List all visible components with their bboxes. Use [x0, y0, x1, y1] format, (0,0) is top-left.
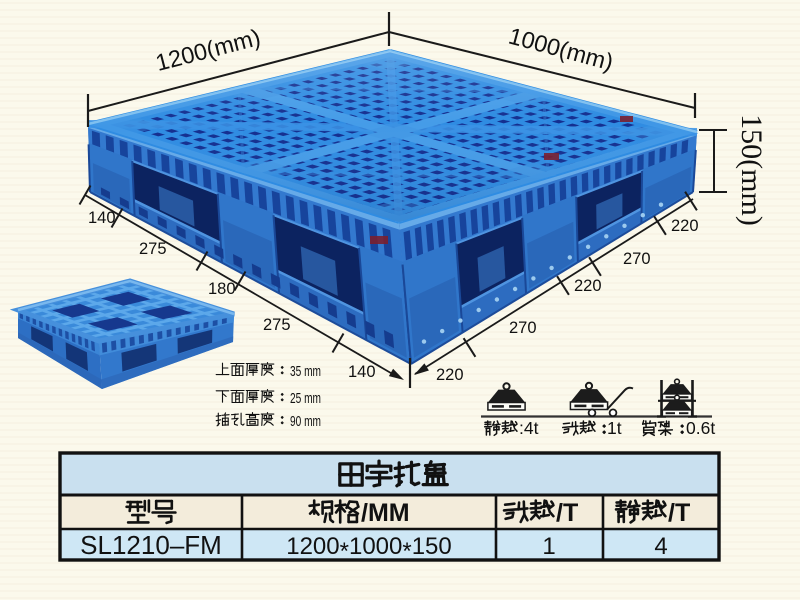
svg-text:25 mm: 25 mm [290, 390, 321, 407]
svg-text:SL1210–FM: SL1210–FM [80, 530, 222, 560]
svg-text:90 mm: 90 mm [290, 413, 321, 430]
svg-text:220: 220 [671, 217, 699, 235]
svg-text:220: 220 [574, 277, 602, 295]
svg-text:/T: /T [556, 499, 578, 527]
svg-text:140: 140 [348, 363, 376, 381]
svg-text:140: 140 [88, 209, 116, 227]
svg-text::4t: :4t [519, 418, 539, 438]
svg-text:270: 270 [509, 319, 537, 337]
svg-text:270: 270 [623, 250, 651, 268]
svg-text:1t: 1t [607, 418, 622, 438]
svg-text:150(mm): 150(mm) [735, 114, 768, 226]
svg-text:180: 180 [208, 280, 236, 298]
svg-text:220: 220 [436, 366, 464, 384]
svg-text:/MM: /MM [361, 499, 410, 527]
svg-text:275: 275 [139, 240, 167, 258]
svg-text:4: 4 [654, 533, 667, 560]
svg-text:275: 275 [263, 316, 291, 334]
svg-text:1: 1 [542, 533, 555, 560]
svg-text:/T: /T [668, 499, 690, 527]
svg-text:35 mm: 35 mm [290, 363, 321, 380]
svg-text:0.6t: 0.6t [686, 418, 715, 438]
